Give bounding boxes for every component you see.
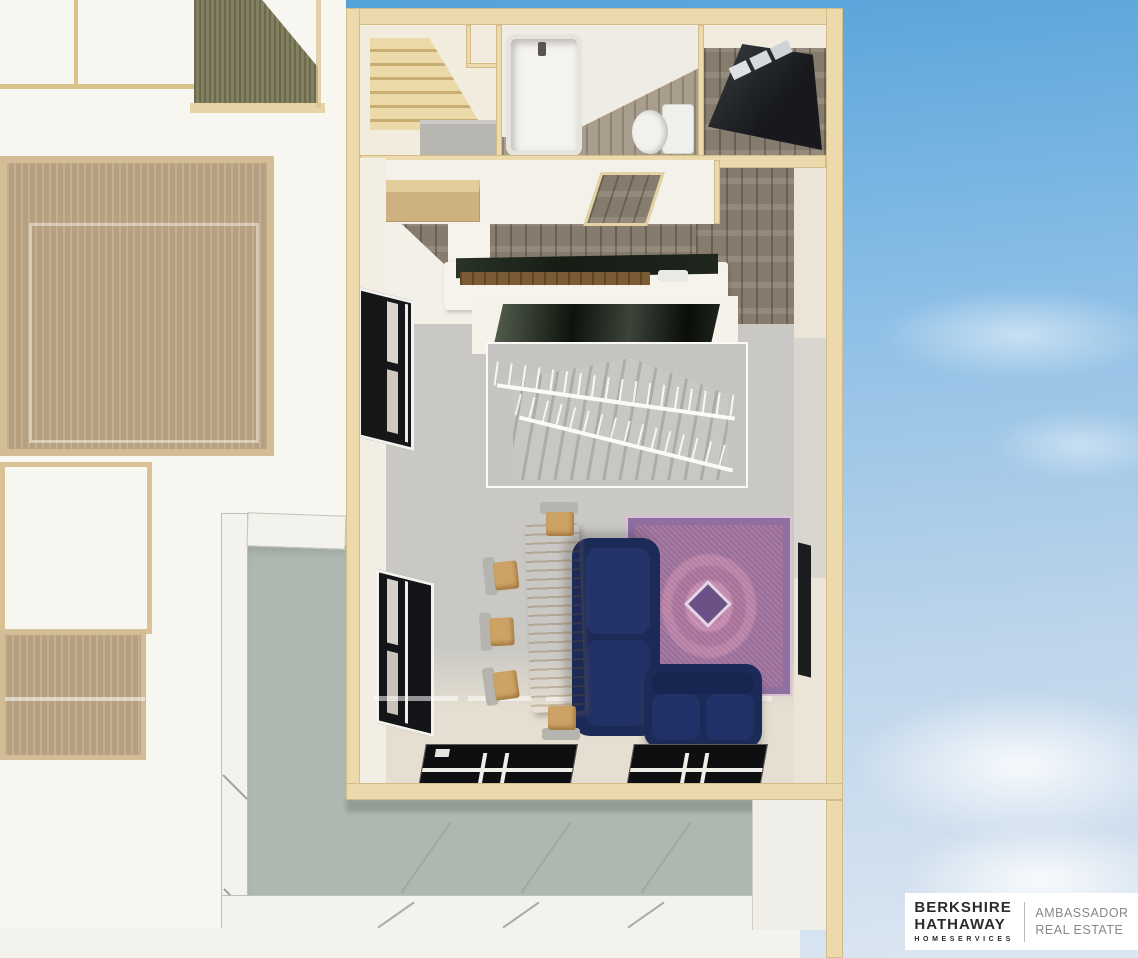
window-mullion xyxy=(422,768,573,772)
window-mullion xyxy=(630,768,763,772)
exterior-wall-bottom xyxy=(346,783,843,800)
dining-chair xyxy=(479,611,515,651)
closet-wall xyxy=(466,25,471,67)
agency-line1: AMBASSADOR xyxy=(1035,905,1128,921)
lower-wall-white xyxy=(752,800,826,930)
window-bottom-left xyxy=(418,744,578,788)
tv xyxy=(798,542,811,677)
dining-chair xyxy=(542,706,580,740)
window-pane xyxy=(387,579,398,646)
neighbor-carpet-area xyxy=(0,156,274,456)
window-mullion xyxy=(405,581,408,724)
carpet-inner-trim xyxy=(29,223,259,443)
closet-wall xyxy=(466,63,498,68)
roof-seam xyxy=(316,0,321,108)
window-bottom-right xyxy=(626,744,768,788)
brand-left-block: BERKSHIRE HATHAWAY HOMESERVICES xyxy=(914,900,1013,943)
rug-medallion xyxy=(684,580,732,628)
ground xyxy=(0,928,800,958)
corrugated-base-trim xyxy=(190,103,325,113)
exterior-wall-left xyxy=(346,8,360,800)
roof-seam xyxy=(0,84,200,89)
kitchen-cabinet xyxy=(382,180,480,222)
deck-railing-top-cap xyxy=(246,512,346,549)
cloud xyxy=(880,290,1138,380)
exterior-wall-top xyxy=(346,8,843,25)
brand-name-line3: HOMESERVICES xyxy=(914,936,1013,943)
floor-reflection xyxy=(374,696,458,701)
window-left-lower xyxy=(376,569,434,737)
dining-chair xyxy=(482,664,521,706)
window-left-upper xyxy=(358,287,414,451)
counter-wood-edge xyxy=(460,272,650,285)
neighbor-carpet-area-small xyxy=(0,630,146,760)
dining-chair xyxy=(482,554,520,595)
loveseat-back xyxy=(652,672,754,694)
floor-plan xyxy=(346,8,843,800)
window-mullion xyxy=(405,304,408,443)
dining-chair xyxy=(540,502,578,536)
soffit-edge xyxy=(714,160,720,224)
wall-artwork xyxy=(494,304,720,344)
window-pane xyxy=(387,301,398,364)
kitchen-sink xyxy=(658,270,688,282)
roof-seam xyxy=(74,0,78,86)
brand-name-line2: HATHAWAY xyxy=(914,917,1013,934)
staircase-up xyxy=(362,32,494,154)
toilet-bowl xyxy=(632,110,668,154)
brand-name-line1: BERKSHIRE xyxy=(914,900,1013,917)
loveseat xyxy=(644,664,762,748)
brand-lockup: BERKSHIRE HATHAWAY HOMESERVICES AMBASSAD… xyxy=(914,900,1128,943)
bathtub-faucet xyxy=(538,42,546,56)
sofa-cushion xyxy=(586,640,650,726)
deck-shadow xyxy=(346,798,793,812)
brand-divider xyxy=(1024,902,1026,942)
loveseat-cushion xyxy=(706,694,754,740)
cloud xyxy=(990,410,1138,480)
floorplan-rendering: BERKSHIRE HATHAWAY HOMESERVICES AMBASSAD… xyxy=(0,0,1138,958)
agency-line2: REAL ESTATE xyxy=(1035,922,1128,938)
deck-railing-left xyxy=(221,513,248,933)
exterior-wall-right-lower xyxy=(826,800,843,958)
sofa-cushion xyxy=(586,548,650,634)
exterior-wall-right xyxy=(826,8,843,800)
stairwell xyxy=(486,342,748,488)
window-pane xyxy=(387,369,398,434)
loveseat-cushion xyxy=(652,694,700,740)
neighbor-roof-panel xyxy=(0,462,152,634)
cloud xyxy=(850,690,1138,840)
brand-right-block: AMBASSADOR REAL ESTATE xyxy=(1035,905,1128,938)
brand-watermark: BERKSHIRE HATHAWAY HOMESERVICES AMBASSAD… xyxy=(905,893,1138,950)
window-pane xyxy=(387,651,398,716)
window-pane xyxy=(435,749,450,757)
carpet-seam xyxy=(5,697,145,701)
dining-table xyxy=(525,523,586,713)
